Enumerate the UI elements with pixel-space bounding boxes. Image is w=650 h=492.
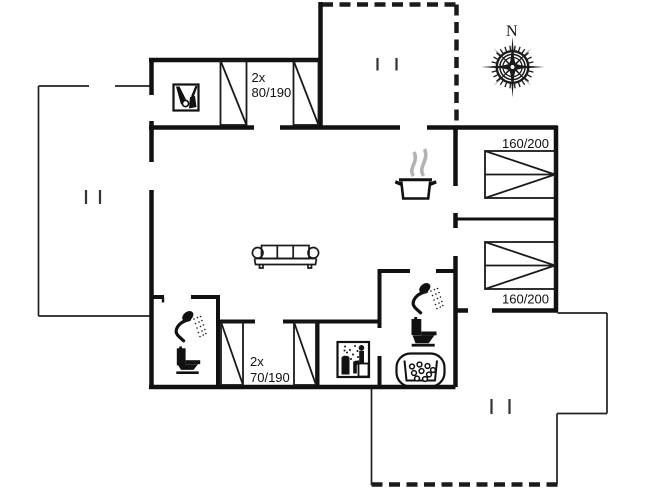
svg-text:80/190: 80/190 [252,85,292,100]
svg-text:2x: 2x [252,70,266,85]
svg-text:160/200: 160/200 [502,292,549,307]
svg-text:70/190: 70/190 [250,370,290,385]
svg-text:N: N [506,23,518,40]
svg-text:160/200: 160/200 [502,136,549,151]
svg-text:2x: 2x [250,354,264,369]
